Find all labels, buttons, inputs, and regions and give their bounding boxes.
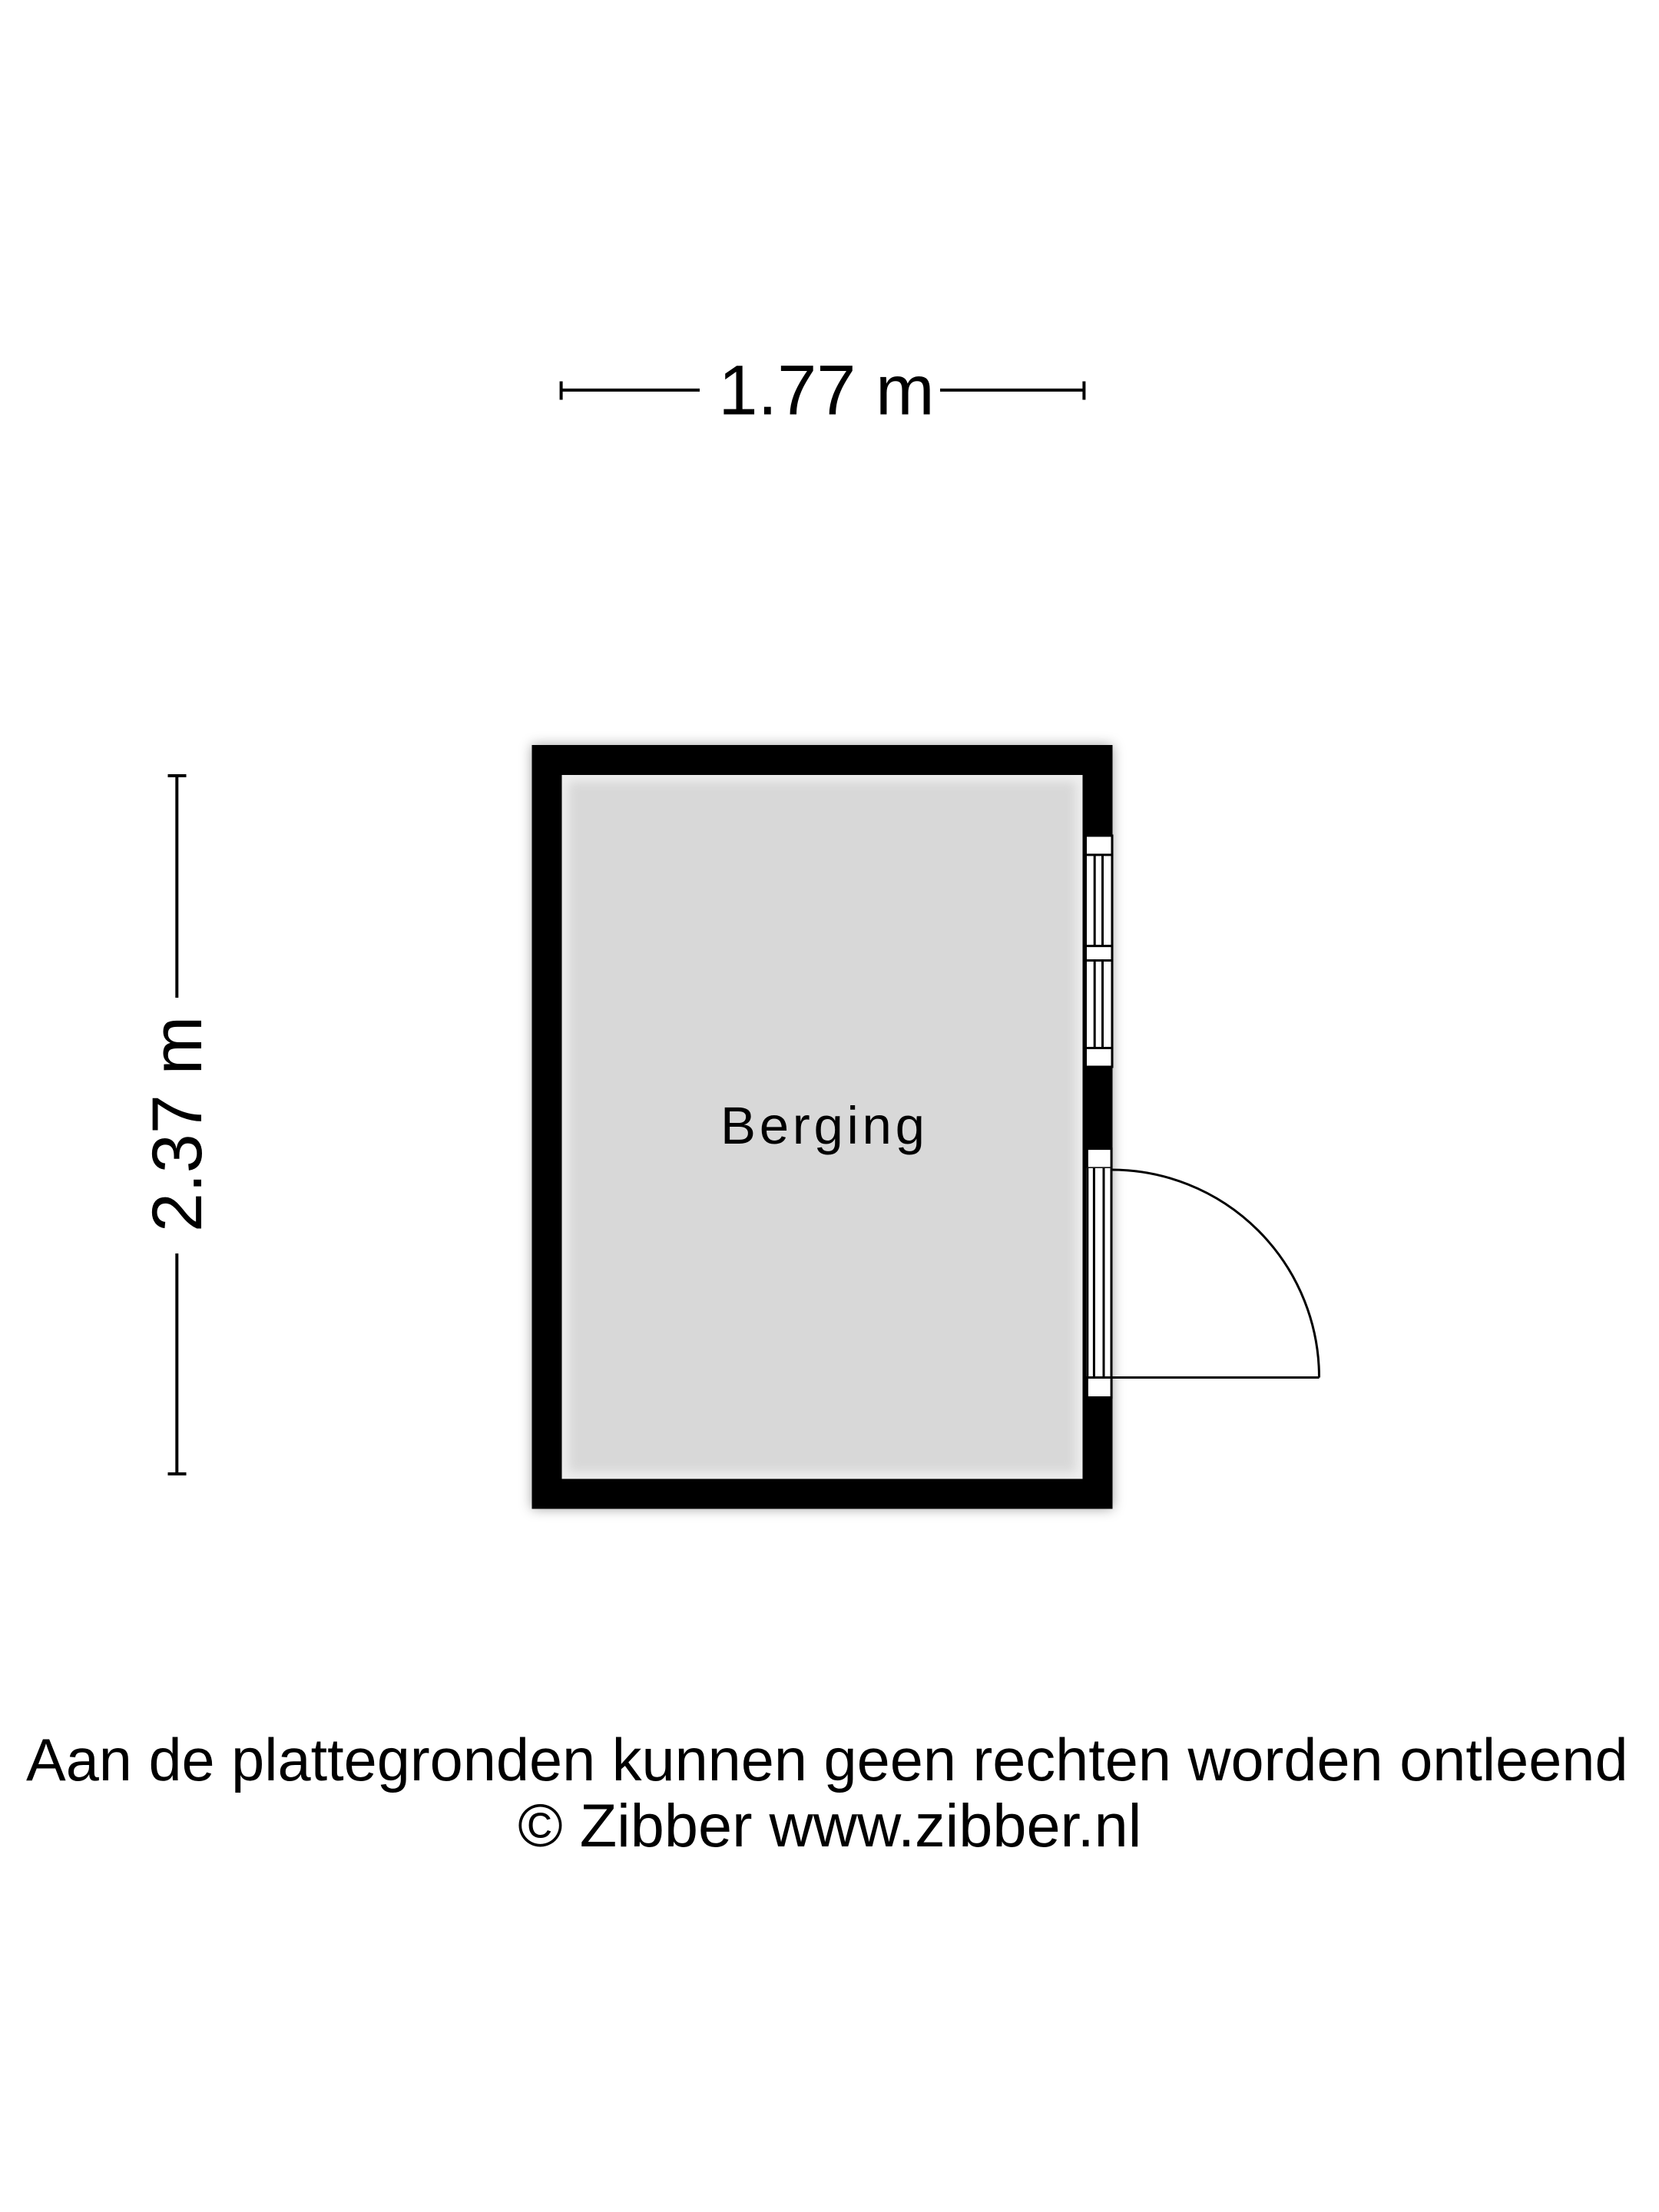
svg-text:1.77 m: 1.77 m xyxy=(718,352,934,430)
svg-text:Aan de plattegronden kunnen ge: Aan de plattegronden kunnen geen rechten… xyxy=(26,1727,1628,1793)
svg-text:© Zibber www.zibber.nl: © Zibber www.zibber.nl xyxy=(518,1791,1141,1859)
svg-text:2.37 m: 2.37 m xyxy=(138,1016,217,1232)
